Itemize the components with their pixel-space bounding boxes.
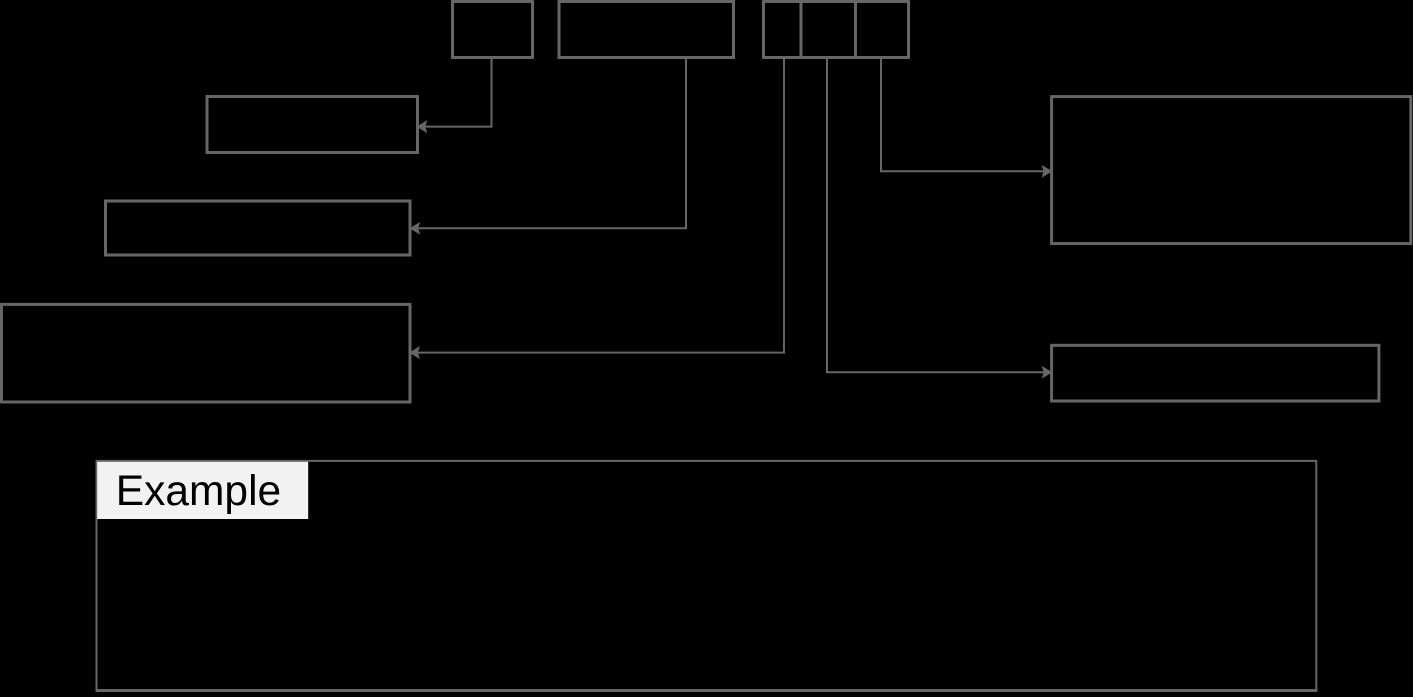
svg-text:Example: Example — [116, 468, 281, 515]
